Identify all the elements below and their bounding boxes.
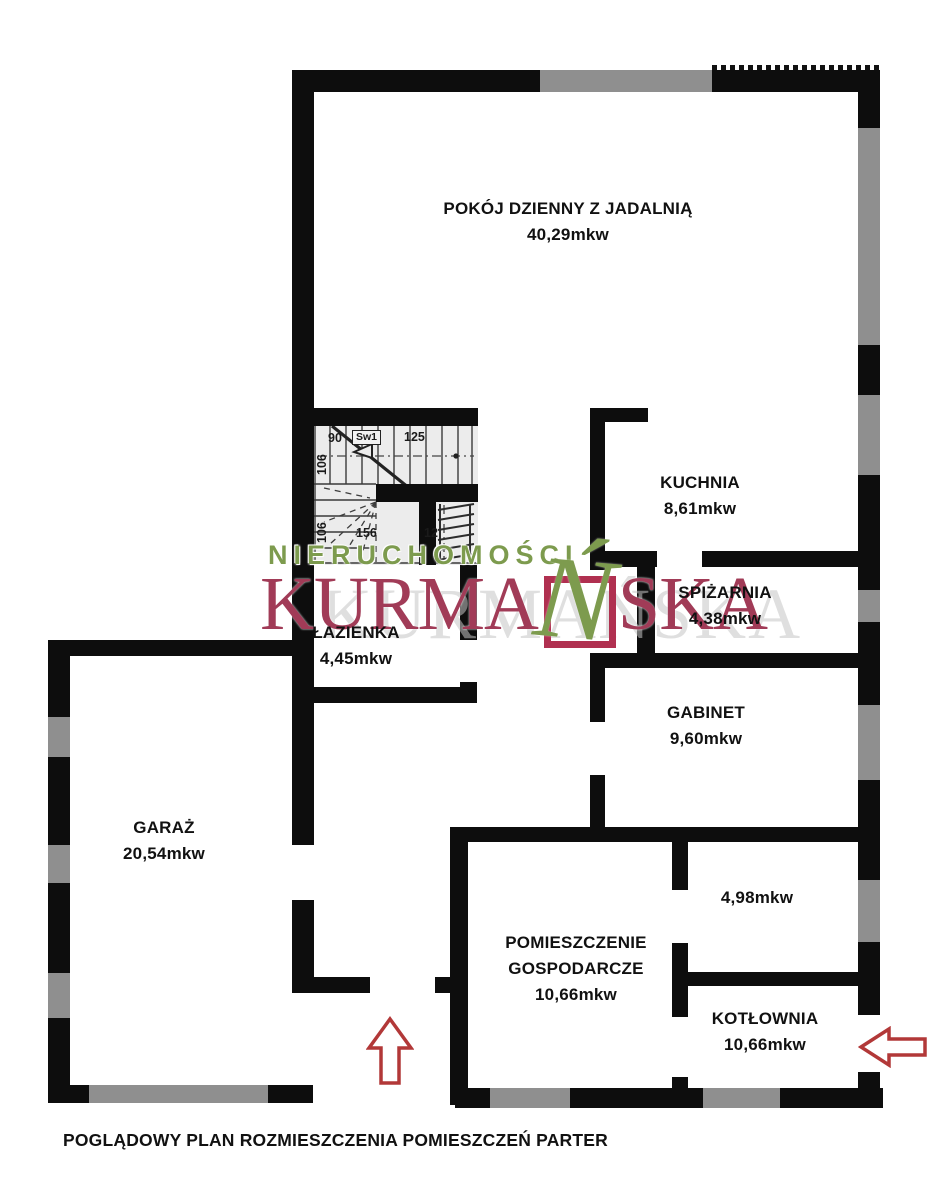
wall — [858, 345, 880, 395]
room-area: 10,66mkw — [675, 1032, 855, 1058]
room-label-small-room: 4,98mkw — [667, 885, 847, 911]
room-area: 20,54mkw — [74, 841, 254, 867]
floor-plan: 90 Sw1 125 106 106 156 12 POKÓJ DZIENNY … — [0, 0, 940, 1200]
watermark-brand-letter-n: Ń — [531, 546, 618, 652]
wall — [858, 70, 880, 128]
garage-door-segment — [89, 1085, 268, 1103]
wall — [292, 408, 478, 426]
wall — [48, 757, 70, 845]
wall — [672, 842, 688, 890]
side-entrance-arrow-left-icon — [858, 1026, 928, 1068]
room-label-kitchen: KUCHNIA 8,61mkw — [610, 470, 790, 522]
room-area: 40,29mkw — [418, 222, 718, 248]
room-name: POKÓJ DZIENNY Z JADALNIĄ — [418, 196, 718, 222]
room-name: GABINET — [616, 700, 796, 726]
wall — [48, 1085, 89, 1103]
window-segment — [858, 705, 880, 780]
stair-dim-12: 12 — [424, 527, 438, 540]
window-segment — [48, 717, 70, 757]
wall — [450, 827, 880, 842]
room-name: GARAŻ — [74, 815, 254, 841]
window-segment — [858, 395, 880, 475]
room-label-boiler: KOTŁOWNIA 10,66mkw — [675, 1006, 855, 1058]
stair-dim-125: 125 — [404, 431, 425, 444]
room-label-bathroom: ŁAZIENKA 4,45mkw — [266, 620, 446, 672]
window-segment — [858, 880, 880, 942]
wall-hatch-edge — [712, 65, 880, 70]
stair-dim-sw1: Sw1 — [352, 430, 381, 445]
window-segment — [858, 128, 880, 345]
wall — [460, 682, 477, 703]
stair-dim-90: 90 — [328, 432, 342, 445]
entrance-arrow-up-icon — [366, 1016, 414, 1086]
wall — [672, 1077, 688, 1100]
window-segment — [48, 973, 70, 1018]
window-segment — [703, 1088, 780, 1108]
wall — [292, 687, 477, 703]
room-area: 8,61mkw — [610, 496, 790, 522]
room-name: SPIŻARNIA — [635, 580, 815, 606]
wall — [590, 653, 880, 668]
window-segment — [858, 590, 880, 622]
wall — [672, 972, 880, 986]
room-label-garage: GARAŻ 20,54mkw — [74, 815, 254, 867]
watermark-brand-logo-box: Ń — [544, 576, 616, 648]
wall — [590, 668, 605, 722]
room-area: 4,38mkw — [635, 606, 815, 632]
stair-dim-106-upper: 106 — [316, 454, 329, 475]
wall — [780, 1088, 883, 1108]
room-name: KOTŁOWNIA — [675, 1006, 855, 1032]
wall — [590, 408, 648, 422]
window-segment — [48, 845, 70, 883]
wall — [48, 640, 70, 717]
room-label-utility: POMIESZCZENIE GOSPODARCZE 10,66mkw — [476, 930, 676, 1008]
window-segment — [540, 70, 712, 92]
wall — [450, 827, 468, 1105]
room-label-living-dining: POKÓJ DZIENNY Z JADALNIĄ 40,29mkw — [418, 196, 718, 248]
room-area: 10,66mkw — [476, 982, 676, 1008]
room-area: 4,45mkw — [266, 646, 446, 672]
window-segment — [490, 1088, 570, 1108]
plan-caption: POGLĄDOWY PLAN ROZMIESZCZENIA POMIESZCZE… — [63, 1130, 608, 1151]
room-name: ŁAZIENKA — [266, 620, 446, 646]
wall — [268, 1085, 313, 1103]
wall — [292, 70, 314, 845]
room-name: KUCHNIA — [610, 470, 790, 496]
wall — [858, 475, 880, 590]
room-area: 9,60mkw — [616, 726, 796, 752]
room-label-office: GABINET 9,60mkw — [616, 700, 796, 752]
wall — [48, 883, 70, 973]
stair-dim-156: 156 — [356, 527, 377, 540]
room-label-pantry: SPIŻARNIA 4,38mkw — [635, 580, 815, 632]
room-name: POMIESZCZENIE GOSPODARCZE — [476, 930, 676, 982]
room-area: 4,98mkw — [667, 885, 847, 911]
wall — [307, 977, 370, 993]
